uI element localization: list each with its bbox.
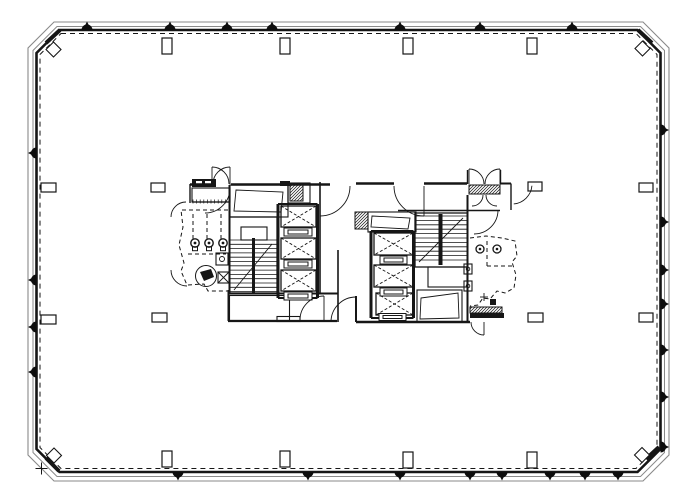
hatch-line: [358, 219, 368, 229]
equipment-outline: [420, 293, 459, 319]
mullion-marker-tip: [665, 348, 669, 352]
elevator-shaft: [374, 265, 413, 287]
door-swing-arc: [474, 210, 498, 234]
hatch-line: [469, 185, 474, 190]
toilet-drain: [222, 242, 225, 245]
toilet-fixture: [476, 245, 484, 253]
equipment-outline: [371, 216, 410, 229]
door-swing-arc: [486, 195, 497, 206]
door-swing-arc: [171, 270, 187, 286]
column: [528, 182, 542, 191]
elevator-shaft: [281, 270, 316, 291]
column: [403, 452, 413, 468]
door-swing-arc: [471, 322, 484, 335]
mullion-marker-tip: [500, 477, 504, 481]
core-room-outline: [428, 267, 467, 287]
inner-boundary-line: [33, 27, 665, 477]
door-swing-arc: [331, 297, 356, 322]
toilet-drain: [194, 242, 197, 245]
hatch-line: [297, 195, 303, 201]
hatch-line: [478, 307, 484, 313]
mullion-marker-tip: [548, 477, 552, 481]
solid-element: [470, 313, 504, 318]
mullion-marker-tip: [28, 370, 32, 374]
toilet-fixture: [191, 239, 199, 251]
hatch-line: [472, 307, 478, 313]
column: [280, 38, 290, 54]
sink-drain: [220, 257, 225, 262]
mullion-marker-tip: [665, 268, 669, 272]
hatch-line: [496, 307, 502, 313]
hatch-line: [495, 189, 500, 194]
mullion-marker-tip: [28, 278, 32, 282]
mullion-marker-tip: [398, 477, 402, 481]
column: [280, 451, 290, 467]
column: [152, 313, 167, 322]
structural-column-grid: [41, 38, 653, 468]
hatch-line: [291, 189, 303, 201]
mullion-marker-tip: [176, 477, 180, 481]
mullion-marker-tip: [306, 477, 310, 481]
hatch-line: [361, 222, 368, 229]
column: [41, 315, 56, 324]
column: [639, 183, 653, 192]
mullion-marker-tip: [665, 302, 669, 306]
curtain-wall-line: [37, 30, 661, 472]
building-perimeter-shell: [28, 22, 669, 481]
door-swing-arc: [205, 188, 230, 213]
mullion-marker-tip: [28, 151, 32, 155]
mullion-marker-tip: [665, 445, 669, 449]
toilet-drain: [208, 242, 211, 245]
column: [151, 183, 165, 192]
equipment-outline: [234, 190, 283, 212]
corner-diamond-marker: [46, 42, 61, 57]
core-room-outline: [417, 290, 462, 322]
solid-element: [490, 299, 496, 305]
column: [403, 38, 413, 54]
door-swing-arc: [320, 186, 350, 216]
column: [527, 38, 537, 54]
wheelchair-symbol: [200, 269, 214, 281]
mullion-marker-tip: [28, 325, 32, 329]
column: [162, 451, 172, 467]
toilet-drain: [479, 248, 482, 251]
facade-mullion-markers: [28, 22, 669, 481]
hatch-line: [290, 185, 301, 196]
column: [41, 183, 56, 192]
hatch-line: [487, 307, 493, 313]
door-swing-arc: [485, 169, 500, 184]
hatch-line: [475, 307, 481, 313]
column: [162, 38, 172, 54]
door-swing-arc: [472, 195, 483, 206]
door-swing-arc: [469, 169, 484, 184]
column: [528, 313, 543, 322]
elevator-shaft: [374, 233, 413, 255]
elevator-shaft: [281, 238, 316, 259]
floor-plan-screenshot: [0, 0, 700, 500]
hatch-line: [355, 212, 366, 223]
floor-plan-canvas: [0, 0, 700, 500]
hatch-line: [355, 212, 360, 217]
service-core: [171, 167, 532, 335]
hatch-line: [493, 307, 499, 313]
mullion-marker-tip: [583, 477, 587, 481]
mullion-marker-tip: [616, 477, 620, 481]
setback-dashed-line: [40, 34, 657, 469]
toilet-fixture: [205, 239, 213, 251]
mullion-marker-tip: [468, 477, 472, 481]
toilet-fixture: [219, 239, 227, 251]
outer-boundary-line: [28, 22, 669, 481]
column: [527, 452, 537, 468]
corner-diamond-marker: [635, 41, 650, 56]
mullion-marker-tip: [665, 395, 669, 399]
core-room-outline: [368, 212, 416, 232]
core-room-outline: [216, 253, 228, 265]
hatch-line: [470, 307, 475, 312]
hatch-line: [490, 307, 496, 313]
hatch-line: [481, 307, 487, 313]
toilet-fixture: [493, 245, 501, 253]
mullion-marker-tip: [665, 220, 669, 224]
toilet-drain: [496, 248, 499, 251]
hatch-line: [484, 307, 490, 313]
mullion-marker-tip: [665, 128, 669, 132]
column: [639, 313, 653, 322]
